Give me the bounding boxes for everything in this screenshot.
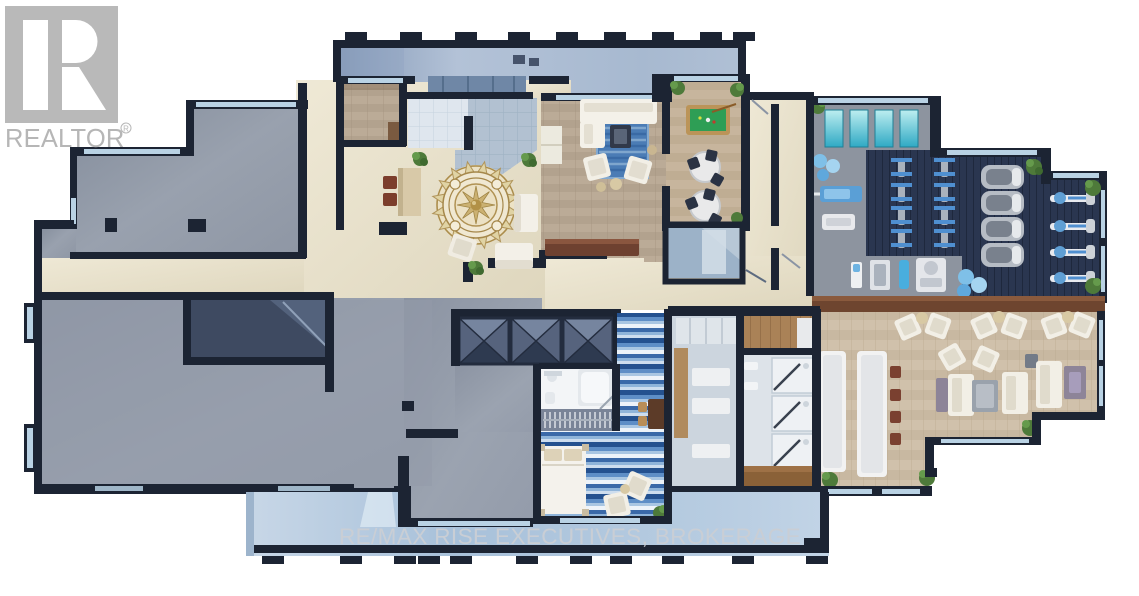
svg-text:REALTOR: REALTOR xyxy=(5,125,125,153)
svg-text:RE/MAX RISE EXECUTIVES, BROKER: RE/MAX RISE EXECUTIVES, BROKERAGE xyxy=(339,524,801,549)
svg-text:R: R xyxy=(123,125,129,134)
